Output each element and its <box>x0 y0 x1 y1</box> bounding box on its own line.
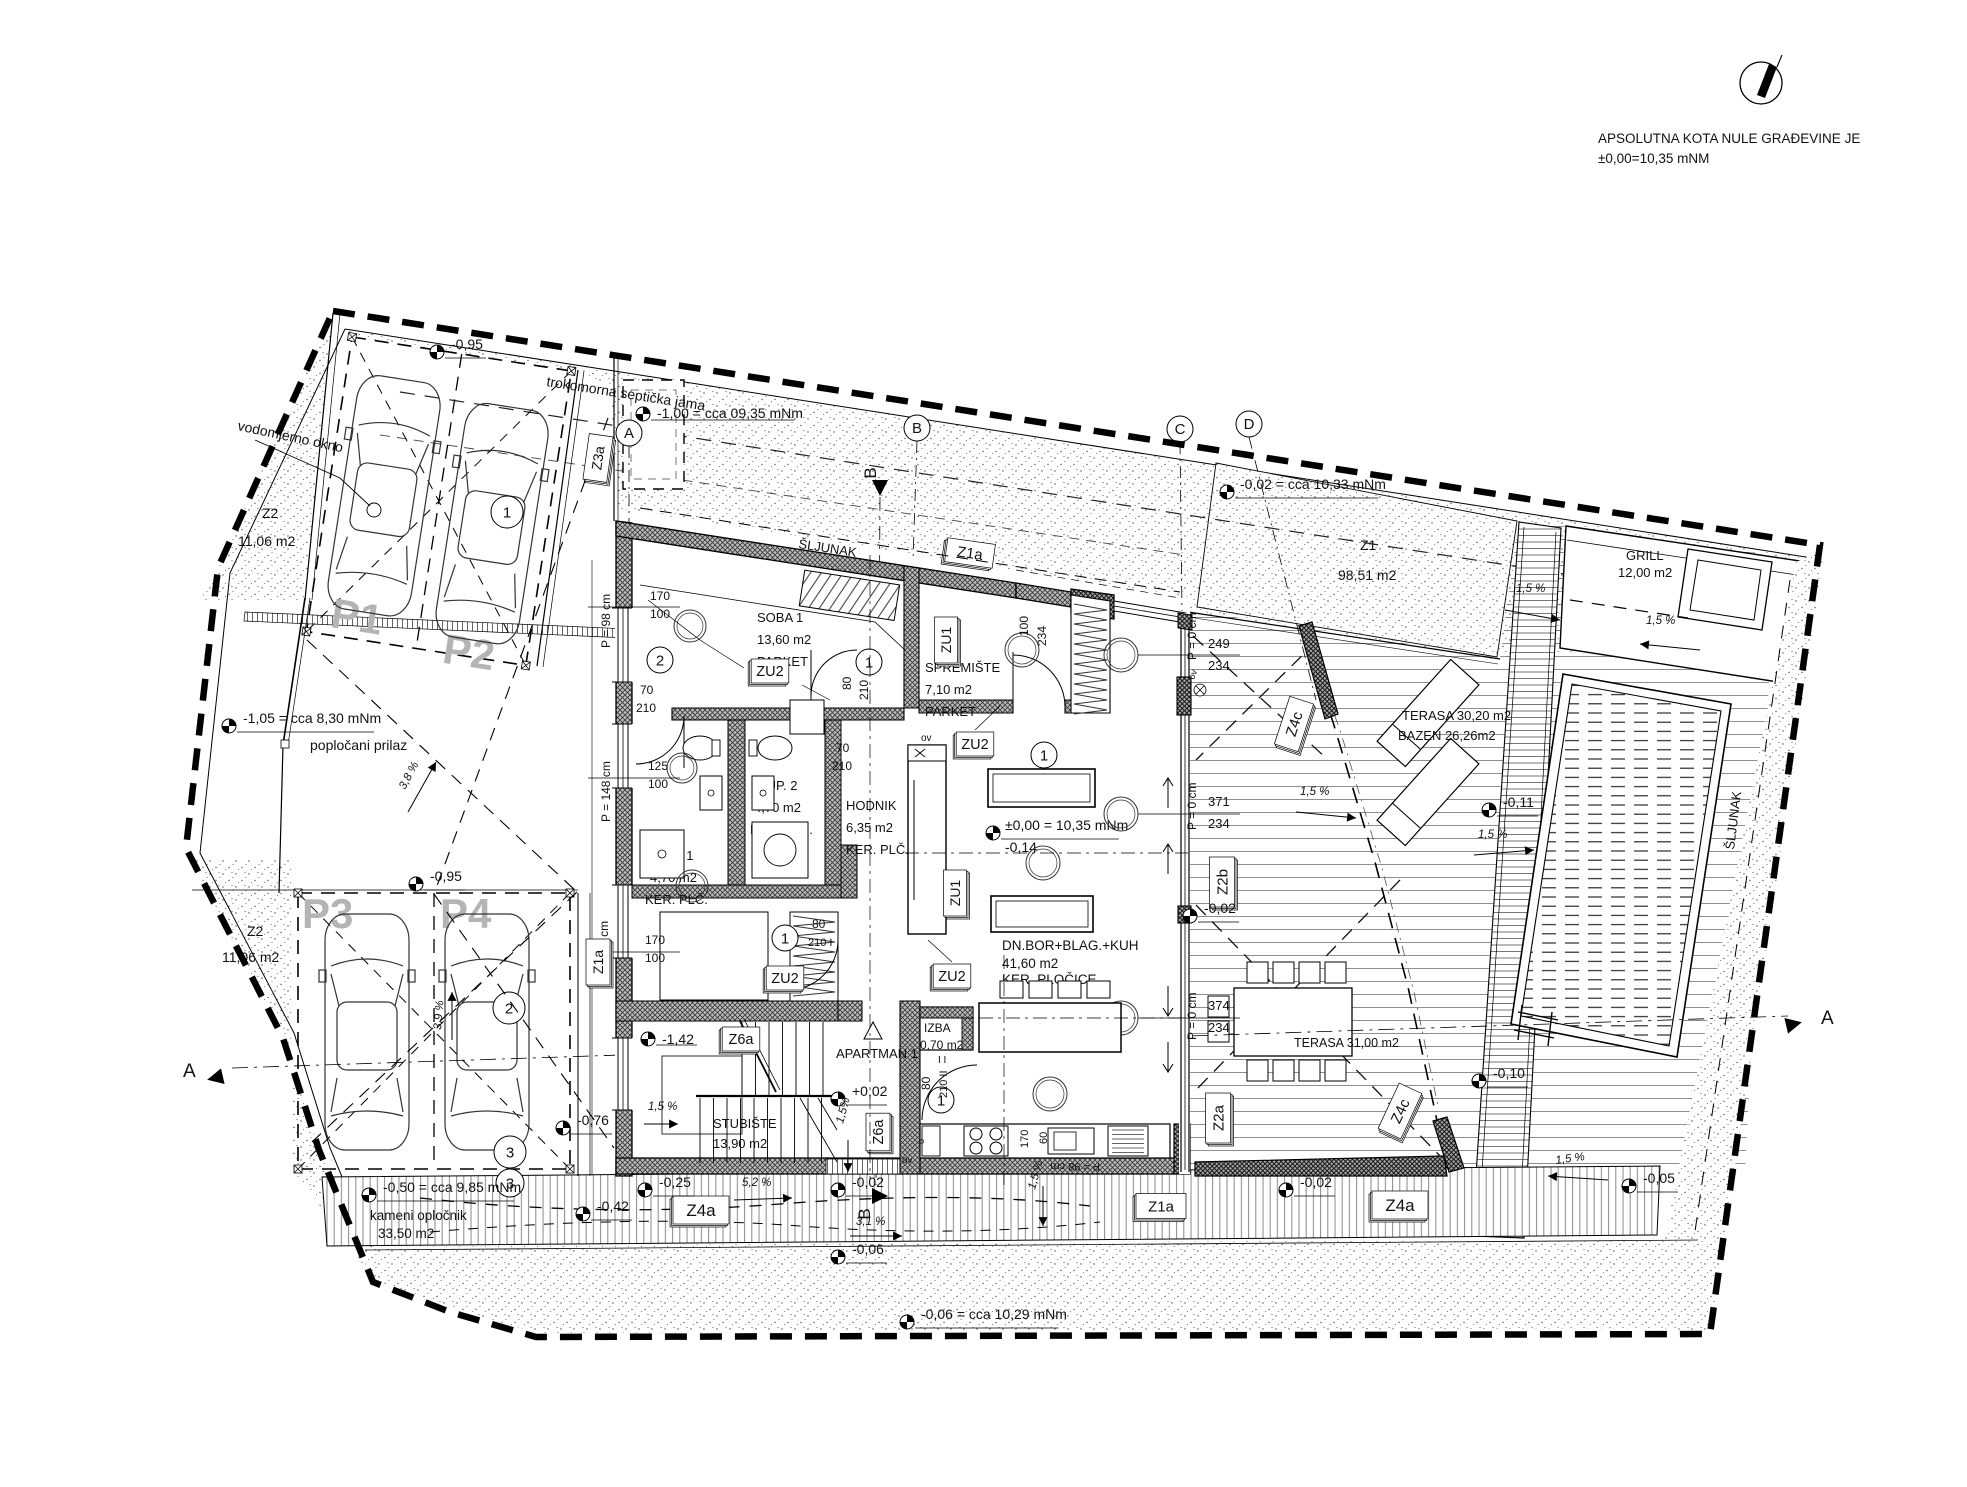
svg-text:GRILL: GRILL <box>1626 548 1664 563</box>
svg-text:1,5 %: 1,5 % <box>1300 786 1329 798</box>
svg-text:3,1 %: 3,1 % <box>856 1216 885 1228</box>
svg-text:-0,06: -0,06 <box>852 1241 884 1257</box>
svg-text:B: B <box>912 420 922 437</box>
svg-text:ov: ov <box>921 733 932 744</box>
svg-text:5,2 %: 5,2 % <box>742 1177 771 1189</box>
svg-text:2: 2 <box>505 1000 513 1017</box>
svg-text:234: 234 <box>1208 658 1230 673</box>
svg-text:-0,05: -0,05 <box>1643 1170 1675 1186</box>
svg-text:APSOLUTNA KOTA NULE GRAĐEVINE: APSOLUTNA KOTA NULE GRAĐEVINE JE <box>1598 131 1860 146</box>
svg-text:374: 374 <box>1208 998 1230 1013</box>
svg-text:TERASA 31,00 m2: TERASA 31,00 m2 <box>1294 1036 1399 1050</box>
svg-text:13,60 m2: 13,60 m2 <box>757 632 811 647</box>
svg-text:100: 100 <box>1017 616 1031 636</box>
svg-text:-0,02: -0,02 <box>1300 1174 1332 1190</box>
svg-text:80: 80 <box>840 676 854 690</box>
svg-text:60: 60 <box>1038 1132 1050 1144</box>
svg-text:A: A <box>1821 1008 1834 1029</box>
svg-text:Z1: Z1 <box>1360 537 1377 553</box>
svg-text:41,60 m2: 41,60 m2 <box>1002 956 1058 971</box>
svg-text:-0,95: -0,95 <box>451 336 483 352</box>
svg-text:P = 0 cm: P = 0 cm <box>1185 783 1199 830</box>
svg-text:KER. PLČ.: KER. PLČ. <box>645 892 708 907</box>
svg-text:ZU1: ZU1 <box>938 627 954 654</box>
svg-text:170: 170 <box>650 589 670 603</box>
svg-text:Z6a: Z6a <box>871 1119 887 1145</box>
svg-text:7,10 m2: 7,10 m2 <box>925 682 972 697</box>
svg-text:371: 371 <box>1208 794 1230 809</box>
svg-text:12,00 m2: 12,00 m2 <box>1618 565 1672 580</box>
svg-text:1,5 %: 1,5 % <box>648 1101 677 1113</box>
svg-text:o: o <box>916 1139 926 1144</box>
svg-text:ZU2: ZU2 <box>938 969 965 985</box>
svg-text:170: 170 <box>645 933 665 947</box>
svg-text:1: 1 <box>503 504 511 521</box>
svg-text:P2: P2 <box>440 625 498 679</box>
svg-text:6,35 m2: 6,35 m2 <box>846 820 893 835</box>
svg-text:-1,42: -1,42 <box>662 1031 694 1047</box>
svg-text:Z2: Z2 <box>262 505 279 521</box>
svg-text:234: 234 <box>1208 816 1230 831</box>
svg-text:Z2b: Z2b <box>1214 869 1231 895</box>
svg-text:Z4a: Z4a <box>686 1201 716 1220</box>
svg-text:100: 100 <box>645 951 665 965</box>
svg-text:-0,02: -0,02 <box>1204 900 1236 916</box>
svg-text:0,70 m2: 0,70 m2 <box>920 1038 964 1052</box>
svg-text:13,90 m2: 13,90 m2 <box>713 1136 767 1151</box>
svg-text:SOBA 1: SOBA 1 <box>757 610 803 625</box>
svg-text:-0,02: -0,02 <box>852 1174 884 1190</box>
svg-text:Z2: Z2 <box>247 923 264 939</box>
svg-text:170: 170 <box>1019 1130 1031 1148</box>
svg-text:-0,25: -0,25 <box>659 1174 691 1190</box>
svg-text:-0,06 = cca 10,29 mNm: -0,06 = cca 10,29 mNm <box>921 1306 1067 1322</box>
svg-text:3,9 %: 3,9 % <box>432 1000 447 1030</box>
svg-text:P = 98 cm: P = 98 cm <box>599 594 613 648</box>
svg-text:80: 80 <box>812 917 826 931</box>
svg-text:1,5 %: 1,5 % <box>1646 615 1675 627</box>
svg-text:P1: P1 <box>328 589 386 643</box>
svg-text:APARTMAN 1: APARTMAN 1 <box>836 1046 918 1061</box>
svg-text:STUBIŠTE: STUBIŠTE <box>713 1116 777 1131</box>
svg-text:1,5 %: 1,5 % <box>1478 829 1507 841</box>
svg-text:Z1a: Z1a <box>1148 1198 1175 1215</box>
svg-text:popločani prilaz: popločani prilaz <box>310 737 407 753</box>
svg-text:PARKET: PARKET <box>925 704 976 719</box>
svg-text:Z1a: Z1a <box>590 950 606 974</box>
svg-text:3: 3 <box>506 1144 514 1161</box>
svg-text:1: 1 <box>865 654 873 671</box>
svg-text:-1,00 = cca 09,35 mNm: -1,00 = cca 09,35 mNm <box>657 405 803 421</box>
svg-text:±0,00=10,35 mNM: ±0,00=10,35 mNM <box>1598 151 1709 166</box>
svg-text:HODNIK: HODNIK <box>846 798 897 813</box>
svg-text:ov: ov <box>902 1155 913 1166</box>
svg-text:210 II: 210 II <box>938 1070 950 1098</box>
svg-text:1: 1 <box>781 930 789 947</box>
svg-text:2: 2 <box>656 652 664 669</box>
svg-text:-0,14: -0,14 <box>1005 839 1037 855</box>
svg-text:210 I: 210 I <box>808 937 832 949</box>
svg-text:100: 100 <box>648 777 668 791</box>
svg-text:11,06 m2: 11,06 m2 <box>238 533 296 549</box>
svg-text:33,50 m2: 33,50 m2 <box>378 1226 434 1241</box>
svg-text:C: C <box>1175 421 1186 438</box>
svg-text:-1,05 = cca 8,30 mNm: -1,05 = cca 8,30 mNm <box>243 710 381 726</box>
svg-text:kameni opločnik: kameni opločnik <box>370 1208 467 1223</box>
svg-text:BAZEN 26,26m2: BAZEN 26,26m2 <box>1398 728 1496 743</box>
svg-text:-0,11: -0,11 <box>1503 794 1534 810</box>
svg-text:ZU2: ZU2 <box>771 971 798 987</box>
svg-text:B: B <box>861 467 880 478</box>
svg-text:P = 0 cm: P = 0 cm <box>1185 613 1199 660</box>
svg-text:-0,50 = cca 9,85 mNm: -0,50 = cca 9,85 mNm <box>383 1179 521 1195</box>
svg-text:100: 100 <box>650 607 670 621</box>
svg-text:KER. PLČ.: KER. PLČ. <box>846 842 909 857</box>
svg-text:P = 148 cm: P = 148 cm <box>599 761 613 822</box>
svg-text:±0,00 = 10,35 mNm: ±0,00 = 10,35 mNm <box>1005 817 1128 833</box>
svg-text:-0,02 = cca 10,33 mNm: -0,02 = cca 10,33 mNm <box>1240 476 1386 492</box>
svg-text:70: 70 <box>836 741 850 755</box>
svg-text:125: 125 <box>648 759 668 773</box>
svg-text:-0,76: -0,76 <box>577 1112 609 1128</box>
svg-text:Z4a: Z4a <box>1385 1196 1415 1215</box>
svg-text:-0,95: -0,95 <box>430 868 462 884</box>
svg-text:11,06 m2: 11,06 m2 <box>222 949 280 965</box>
svg-text:ZU1: ZU1 <box>947 880 963 907</box>
svg-text:80: 80 <box>919 1076 933 1090</box>
svg-text:98,51 m2: 98,51 m2 <box>1338 567 1397 583</box>
svg-text:A: A <box>624 425 634 442</box>
svg-text:I I: I I <box>938 1055 946 1066</box>
svg-text:P = 98 cm: P = 98 cm <box>1050 1160 1100 1172</box>
svg-text:Z2a: Z2a <box>1210 1104 1227 1131</box>
svg-text:1: 1 <box>1040 747 1048 764</box>
svg-text:1,5 %: 1,5 % <box>1516 583 1545 595</box>
svg-text:Z3a: Z3a <box>588 445 607 471</box>
svg-text:210: 210 <box>857 680 871 700</box>
svg-text:ZU2: ZU2 <box>961 737 988 753</box>
svg-text:P = 0 cm: P = 0 cm <box>1185 993 1199 1040</box>
svg-text:DN.BOR+BLAG.+KUH: DN.BOR+BLAG.+KUH <box>1002 938 1139 953</box>
svg-text:249: 249 <box>1208 636 1230 651</box>
svg-text:70: 70 <box>640 683 654 697</box>
svg-text:234: 234 <box>1035 626 1049 646</box>
svg-text:IZBA: IZBA <box>924 1021 951 1035</box>
svg-text:Z6a: Z6a <box>729 1032 755 1048</box>
svg-text:234: 234 <box>1208 1020 1230 1035</box>
svg-text:-0,42: -0,42 <box>597 1198 629 1214</box>
svg-text:ZU2: ZU2 <box>756 664 783 680</box>
svg-text:-0,10: -0,10 <box>1493 1065 1525 1081</box>
svg-text:D: D <box>1244 416 1255 433</box>
svg-text:210: 210 <box>832 759 852 773</box>
svg-text:TERASA 30,20 m2: TERASA 30,20 m2 <box>1402 708 1511 723</box>
svg-text:210: 210 <box>636 701 656 715</box>
svg-text:A: A <box>183 1061 196 1082</box>
